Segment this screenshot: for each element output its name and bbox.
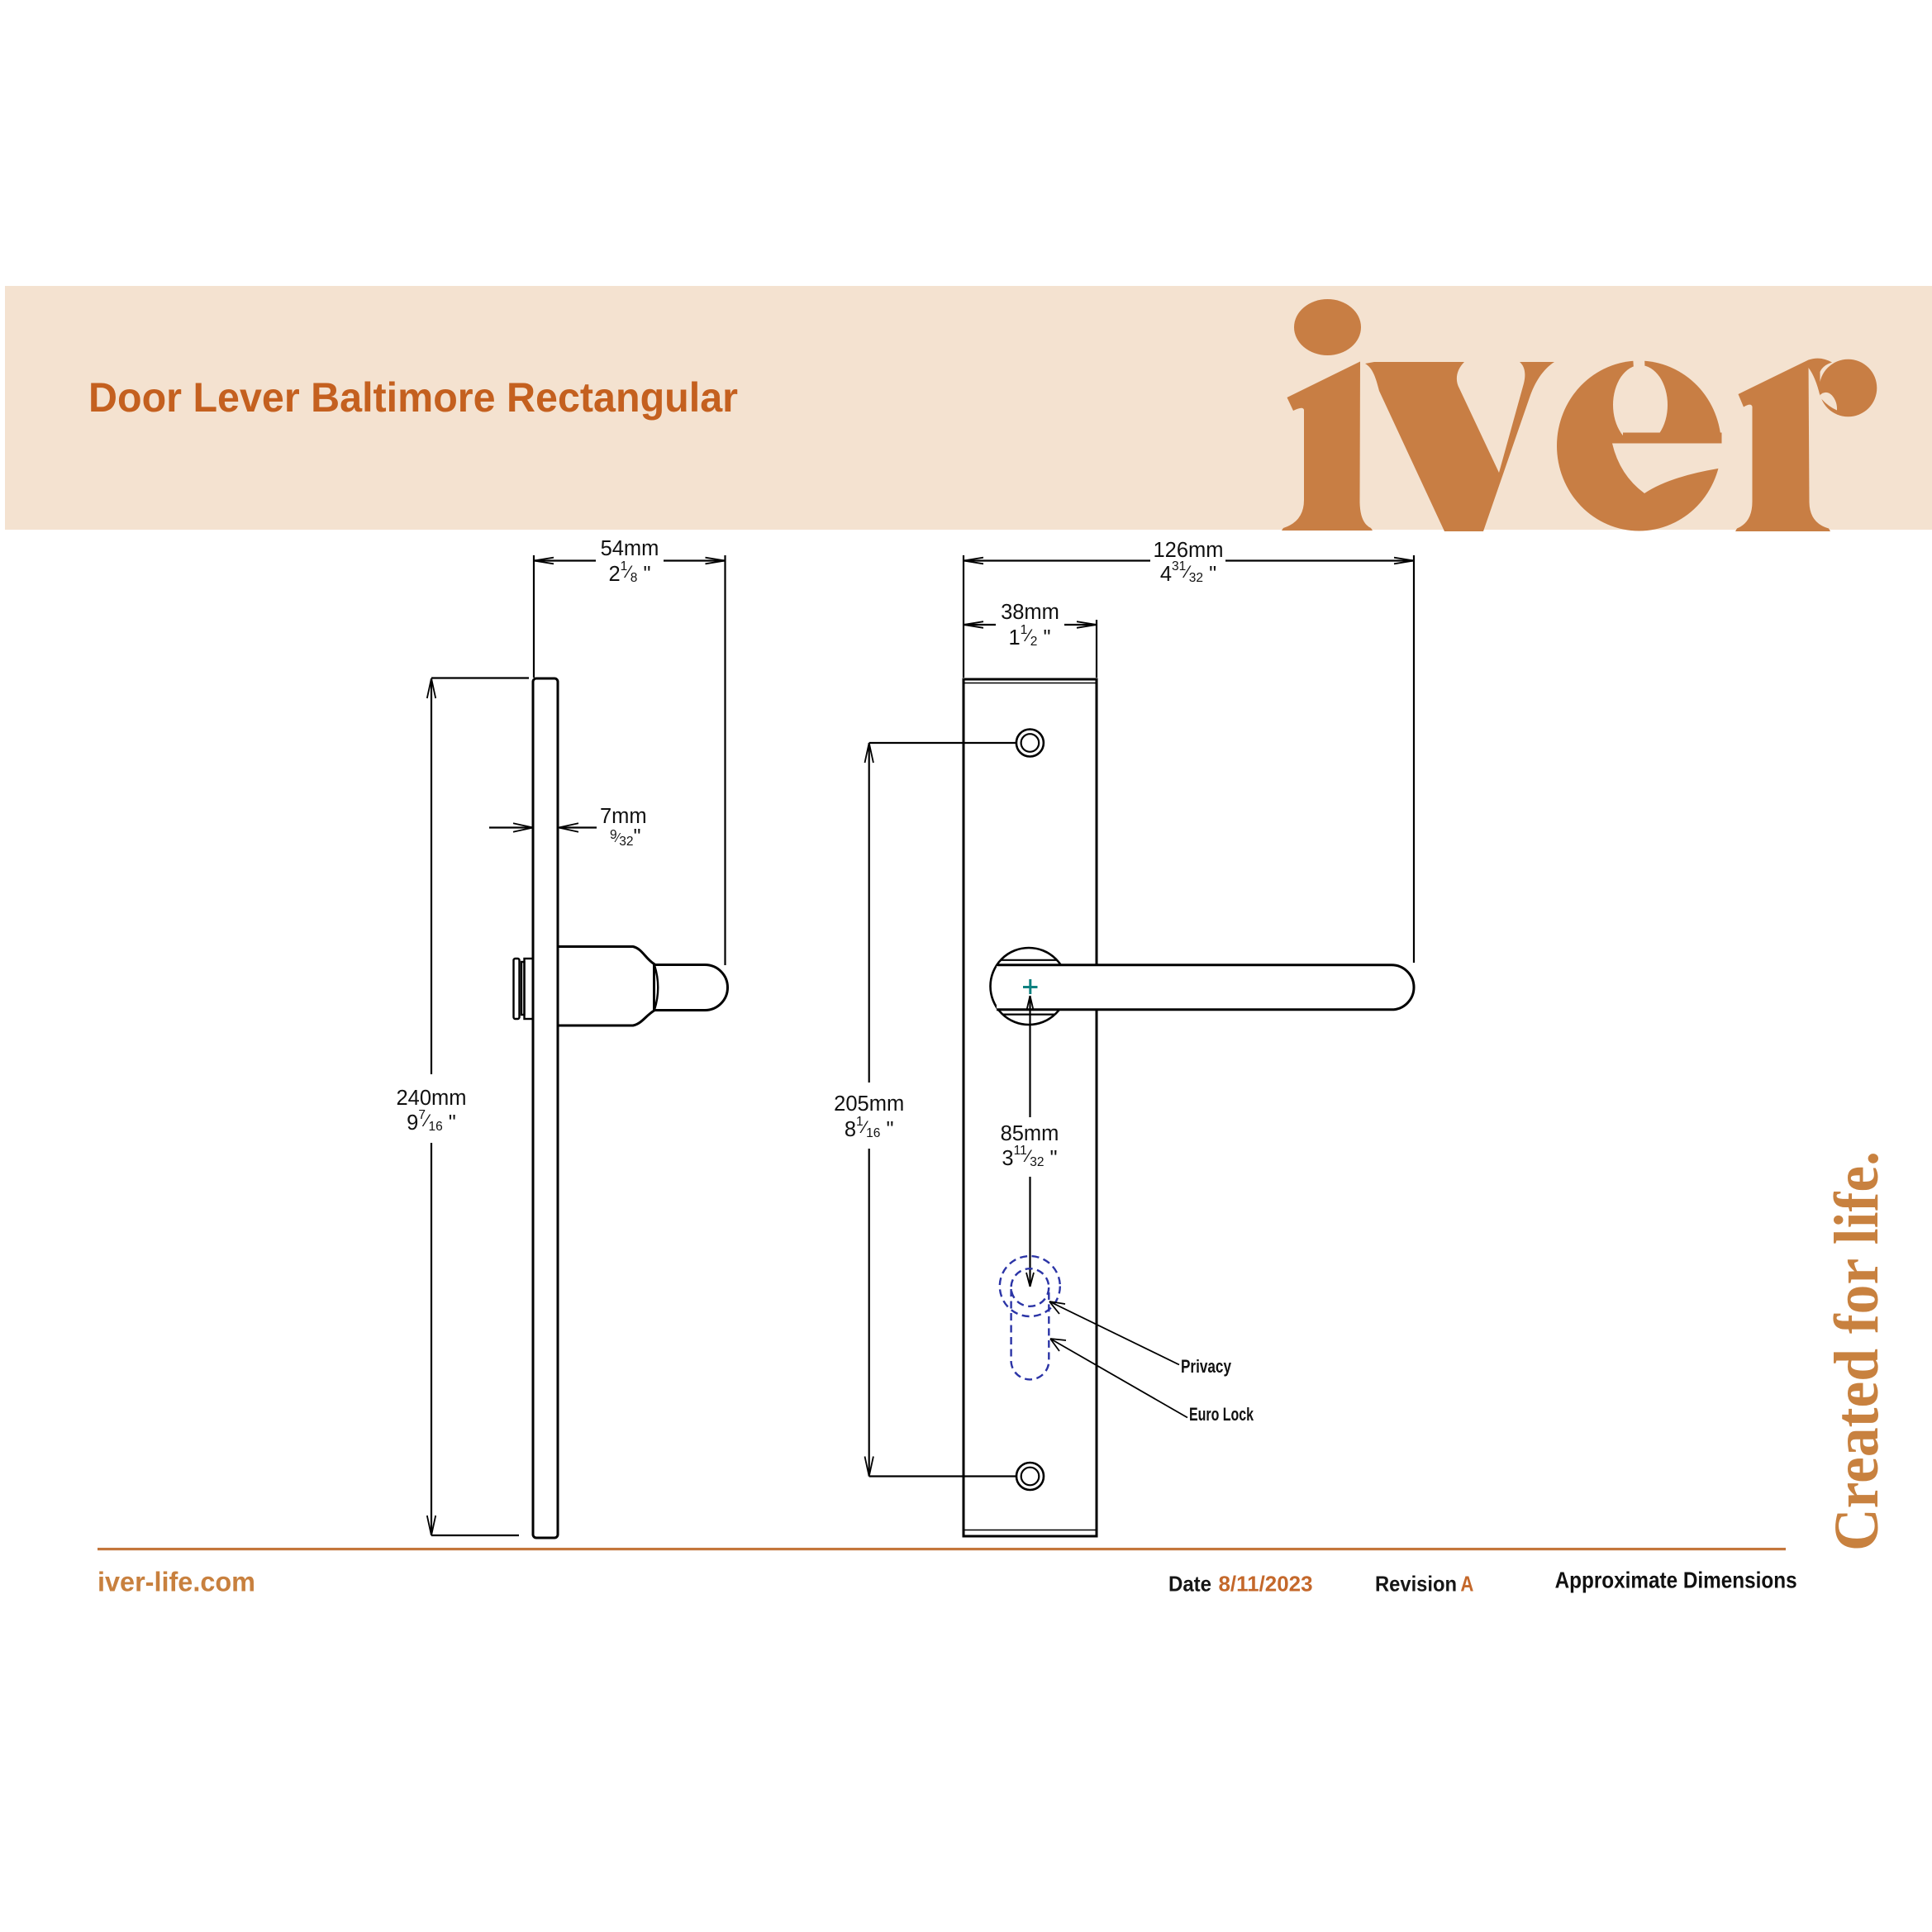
svg-text:iver-life.com: iver-life.com [98,1567,255,1597]
svg-text:8/11/2023: 8/11/2023 [1219,1572,1313,1597]
svg-text:Privacy: Privacy [1181,1356,1232,1377]
svg-text:Euro Lock: Euro Lock [1189,1404,1254,1425]
svg-text:54mm: 54mm [601,537,659,560]
svg-text:11⁄2 ": 11⁄2 " [1008,623,1050,650]
svg-text:205mm: 205mm [834,1092,904,1116]
svg-text:Date: Date [1168,1572,1211,1597]
svg-text:240mm: 240mm [396,1087,466,1110]
svg-text:85mm: 85mm [1001,1122,1059,1145]
svg-text:126mm: 126mm [1153,539,1223,562]
svg-text:38mm: 38mm [1001,601,1059,624]
svg-text:Revision: Revision [1375,1572,1457,1597]
svg-text:311⁄32 ": 311⁄32 " [1002,1144,1057,1170]
svg-text:21⁄8 ": 21⁄8 " [608,559,650,586]
svg-text:7mm: 7mm [600,805,647,828]
svg-text:Door Lever Baltimore Rectangul: Door Lever Baltimore Rectangular [88,374,738,421]
svg-text:431⁄32 ": 431⁄32 " [1160,559,1216,586]
svg-text:Created for life.: Created for life. [1822,1151,1892,1551]
svg-text:Approximate Dimensions: Approximate Dimensions [1555,1568,1797,1593]
svg-text:A: A [1460,1572,1473,1597]
